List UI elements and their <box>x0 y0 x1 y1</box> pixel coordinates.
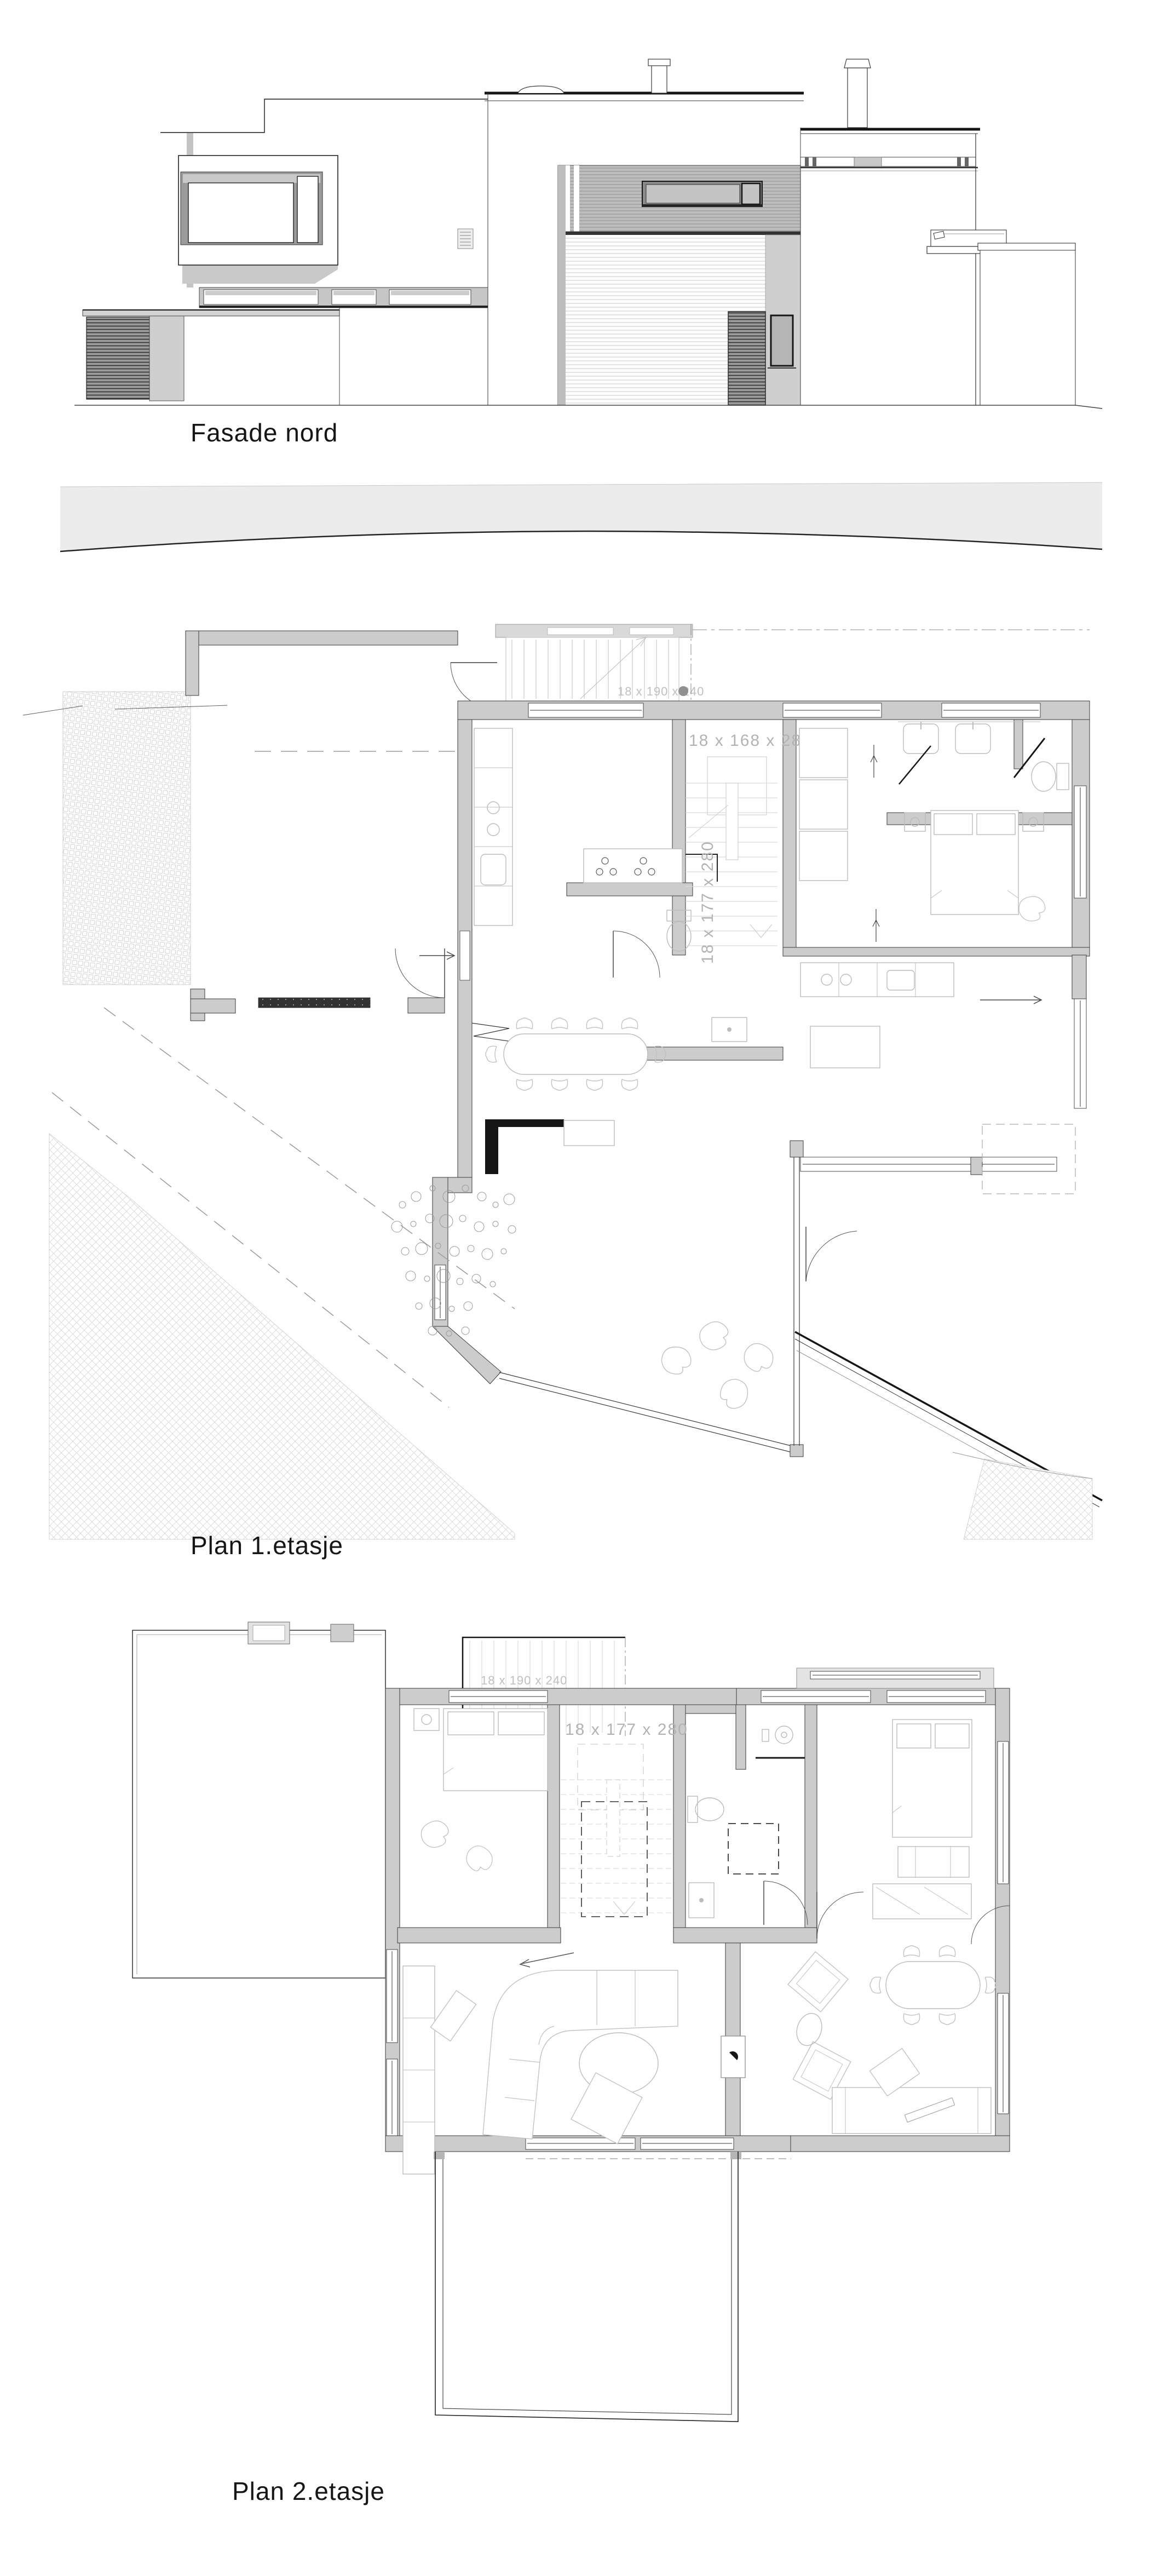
facade-ground-line <box>74 405 1102 409</box>
plan2-roof-terrace <box>133 1622 385 1978</box>
bath-toilet <box>1032 762 1056 791</box>
bed-left <box>443 1709 548 1791</box>
facade-right-section <box>800 128 1075 405</box>
chimney-left <box>648 59 670 93</box>
desk <box>832 2088 991 2134</box>
plan2-exterior-stair-dim: 18 x 190 x 240 <box>481 1674 567 1687</box>
facade-rooflines <box>160 86 804 133</box>
wardrobe <box>873 1884 971 1919</box>
vent-grille <box>458 229 473 249</box>
right-low-volume <box>980 250 1075 405</box>
carport-front <box>83 308 339 405</box>
facade-projecting-box <box>178 156 338 265</box>
plan2-lower-terrace <box>434 2152 741 2422</box>
plan2-fireplace <box>721 2036 745 2078</box>
plan2-bathroom <box>688 1726 808 1925</box>
plan1-exterior-stair: 18 x 190 x 240 <box>451 624 1090 709</box>
box-shadow <box>182 265 338 284</box>
plan1-label: Plan 1.etasje <box>191 1531 343 1560</box>
entry-door <box>728 312 765 405</box>
facade-window-band <box>199 287 488 308</box>
roof-hatch <box>518 86 564 93</box>
plan1-south-counter <box>800 963 1041 1004</box>
box-window-large-pane <box>188 183 293 243</box>
plan1-bedroom <box>799 728 1045 942</box>
plan1-island2 <box>810 1026 880 1068</box>
plan2-bedroom-left <box>414 1709 548 1877</box>
lounge-chair <box>430 1991 476 2041</box>
exterior-stair-dim: 18 x 190 x 240 <box>618 685 704 698</box>
clerestory-band <box>800 157 976 166</box>
facade-drawing: Fasade nord <box>74 59 1102 447</box>
dining-table-2 <box>886 1962 980 2009</box>
ottoman <box>571 2073 642 2144</box>
plan1-terrace-chairs <box>659 1318 779 1412</box>
bed <box>931 810 1018 915</box>
terrace-glazing-south <box>499 1378 794 1453</box>
facade-clad-volume <box>558 165 800 232</box>
cobblestone-paving <box>63 692 191 985</box>
facade-label: Fasade nord <box>191 418 338 447</box>
door-mat <box>258 998 370 1008</box>
entry-side-window <box>771 315 793 366</box>
chimney-right <box>844 59 871 128</box>
bed-right <box>892 1720 972 1837</box>
diamond-chairs <box>788 1952 851 2100</box>
drawing-sheet: Fasade nord 18 x 190 x 240 <box>0 0 1175 2576</box>
stair1-dim-main: 18 x 168 x 280 <box>689 732 812 750</box>
plan1-site <box>49 1008 1102 1539</box>
plan2-dining <box>788 1946 996 2134</box>
plan2-bedroom-right <box>817 1720 1010 1944</box>
plan2-label: Plan 2.etasje <box>232 2477 385 2505</box>
box-window-narrow-pane <box>297 176 318 243</box>
road-band <box>60 482 1102 551</box>
plan1-drawing: 18 x 190 x 240 <box>23 624 1102 1560</box>
plan1-pebbles <box>391 1185 516 1336</box>
shower-dashed <box>728 1824 779 1874</box>
stair1-dim-lower: 18 x 177 x 280 <box>699 841 717 964</box>
plan2-toilet <box>695 1798 724 1821</box>
plan1-carport <box>23 631 512 1042</box>
plan2-drawing: 18 x 190 x 240 18 x 177 x 280 <box>133 1622 1010 2505</box>
louver-screen <box>87 317 149 399</box>
plan1-bathroom <box>898 722 1069 791</box>
plan1-fireplace <box>485 1119 614 1174</box>
section-break-symbol <box>471 1023 512 1042</box>
entry-sliding-door <box>460 931 470 980</box>
plan2-stair-dim: 18 x 177 x 280 <box>565 1721 688 1739</box>
kitchen-island <box>584 849 682 883</box>
plan1-dining-table <box>486 1018 666 1090</box>
